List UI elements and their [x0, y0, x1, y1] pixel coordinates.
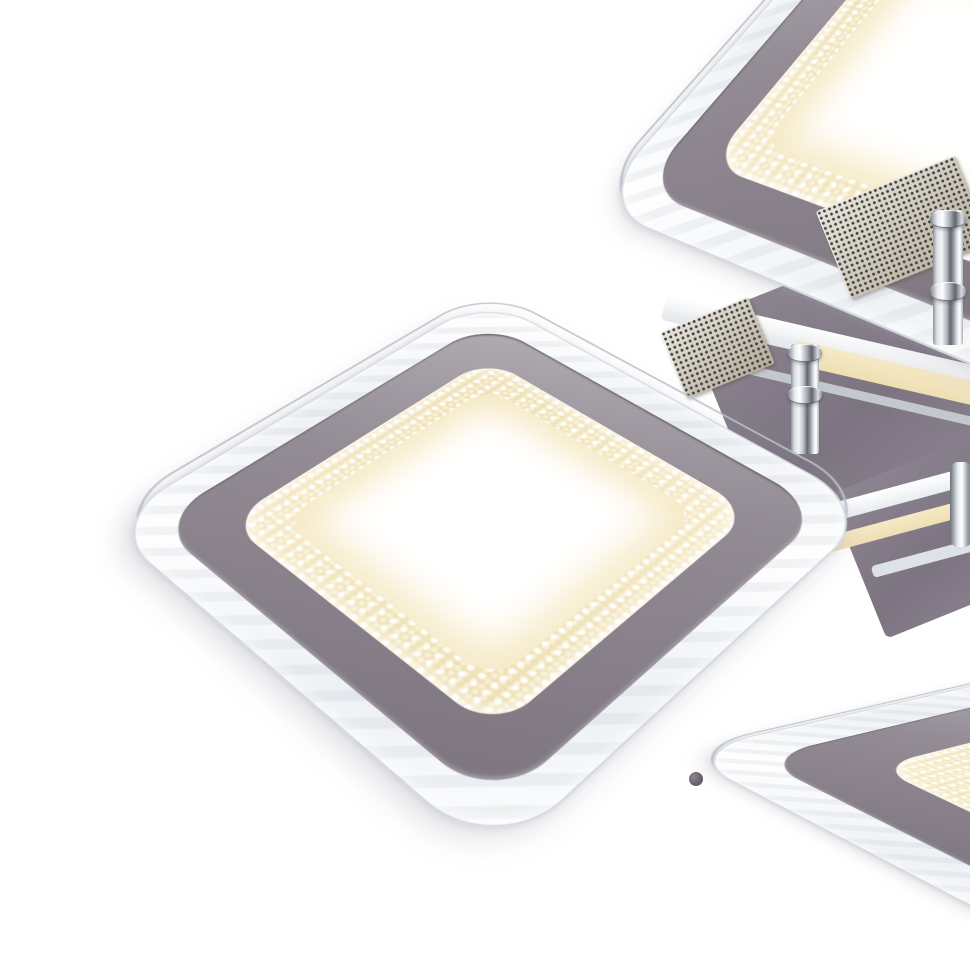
- chrome-rod-center: [791, 344, 819, 454]
- chrome-rod-ring: [930, 282, 966, 301]
- light-panel-bottom-right: [677, 663, 970, 949]
- chrome-rod-ring: [788, 386, 822, 404]
- mounting-screw: [689, 772, 703, 786]
- chrome-rod-cap: [788, 344, 822, 362]
- chrome-fitting-edge: [950, 462, 970, 547]
- product-photo: [0, 0, 970, 970]
- chrome-rod-cap: [930, 210, 966, 228]
- chrome-rod-right: [933, 210, 963, 345]
